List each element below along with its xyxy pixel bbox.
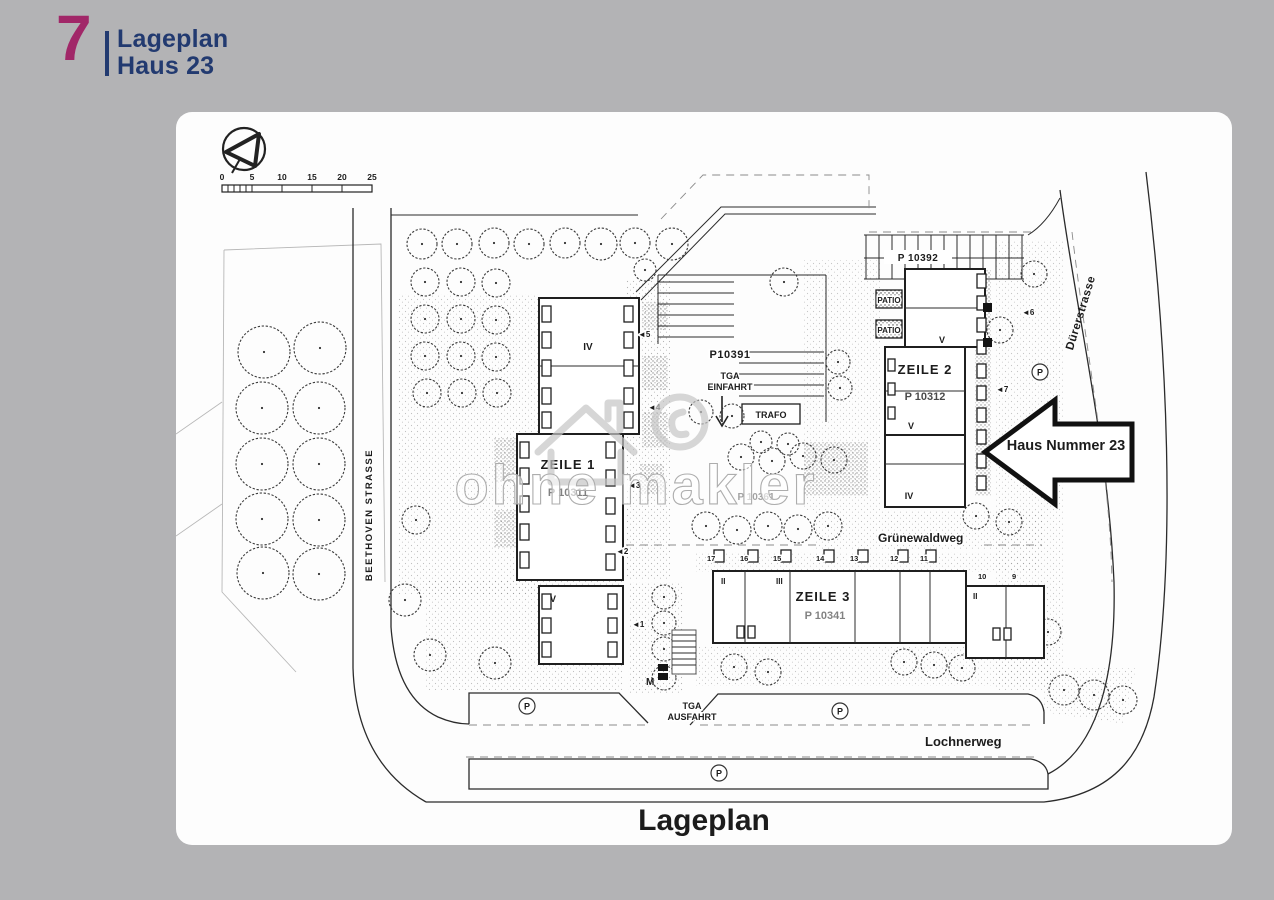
- zeile2-top-floor-label: V: [939, 335, 945, 345]
- tree-center-dot: [839, 387, 841, 389]
- parking-icon: P: [832, 703, 848, 719]
- parking-letter: P: [837, 707, 843, 717]
- house-number: 9: [1012, 572, 1016, 581]
- house-number: 15: [773, 554, 781, 563]
- tree-center-dot: [787, 443, 789, 445]
- tree-center-dot: [736, 529, 738, 531]
- tree-center-dot: [495, 356, 497, 358]
- tga-einfahrt-label-1: TGA: [721, 371, 740, 381]
- zeile2-parcel-label: P 10312: [905, 391, 946, 403]
- tree-center-dot: [1093, 694, 1095, 696]
- tree-center-dot: [456, 243, 458, 245]
- stairs: [672, 630, 696, 674]
- einfahrt-arrow-icon: [716, 396, 728, 426]
- tree-center-dot: [827, 525, 829, 527]
- tree-center-dot: [262, 572, 264, 574]
- tree-center-dot: [731, 415, 733, 417]
- tree-center-dot: [705, 525, 707, 527]
- tree-center-dot: [767, 671, 769, 673]
- parking-icon: P: [519, 698, 535, 714]
- zeile3-parcel-label: P 10341: [805, 610, 846, 622]
- m-label: M: [646, 677, 654, 688]
- section-title-line2: Haus 23: [117, 53, 228, 80]
- tree-center-dot: [263, 351, 265, 353]
- highlight-arrow-label: Haus Nummer 23: [1007, 438, 1125, 454]
- tree-center-dot: [837, 361, 839, 363]
- tree-center-dot: [415, 519, 417, 521]
- tree-center-dot: [318, 463, 320, 465]
- scale-bar: 0 5 10 15 20 25: [220, 172, 377, 192]
- tree-center-dot: [318, 407, 320, 409]
- scale-tick: 15: [307, 172, 317, 182]
- unit-marker: ◄6: [1022, 308, 1035, 317]
- tree-center-dot: [461, 392, 463, 394]
- parking-letter: P: [1037, 368, 1043, 378]
- tree-center-dot: [424, 281, 426, 283]
- plan-caption: Lageplan: [638, 804, 770, 837]
- tree-center-dot: [493, 242, 495, 244]
- house-number: 10: [978, 572, 986, 581]
- tree-center-dot: [644, 269, 646, 271]
- zeile1-lower-floor-label: V: [550, 594, 556, 604]
- tree-center-dot: [663, 622, 665, 624]
- north-arrow-icon: [223, 128, 265, 173]
- scale-tick: 10: [277, 172, 287, 182]
- tree-center-dot: [318, 519, 320, 521]
- section-number: 7: [56, 6, 92, 70]
- page: { "page": { "background": "#b3b3b5", "ca…: [0, 0, 1274, 900]
- tree-center-dot: [495, 282, 497, 284]
- section-header: 7 Lageplan Haus 23: [0, 0, 1274, 112]
- tree-center-dot: [903, 661, 905, 663]
- tree-center-dot: [460, 318, 462, 320]
- tree-center-dot: [460, 355, 462, 357]
- scale-tick: 5: [250, 172, 255, 182]
- tree-center-dot: [429, 654, 431, 656]
- parking-letter: P: [716, 769, 722, 779]
- tree-center-dot: [1063, 689, 1065, 691]
- unit-marker: ◄5: [638, 330, 651, 339]
- tree-center-dot: [496, 392, 498, 394]
- street-duerer-label: Dürerstrasse: [1064, 275, 1098, 352]
- tree-center-dot: [460, 281, 462, 283]
- tree-center-dot: [404, 599, 406, 601]
- tree-center-dot: [424, 355, 426, 357]
- zeile3-ext-floor-label: II: [973, 592, 977, 601]
- unit-marker: ◄1: [632, 620, 645, 629]
- patio-label-1: PATIO: [877, 296, 900, 305]
- tga-einfahrt-label-2: EINFAHRT: [708, 382, 754, 392]
- house-number: 16: [740, 554, 748, 563]
- tree-center-dot: [797, 528, 799, 530]
- trafo: TRAFO: [742, 404, 800, 424]
- watermark-text: ohne makler: [455, 453, 818, 516]
- zeile2-mid-floor-label: V: [908, 421, 914, 431]
- house-number: 11: [920, 554, 928, 563]
- house-number: 17: [707, 554, 715, 563]
- street-beethoven-label: BEETHOVEN STRASSE: [364, 449, 375, 581]
- street-lochner: Lochnerweg: [466, 693, 1048, 789]
- tree-center-dot: [760, 441, 762, 443]
- patio-label-2: PATIO: [877, 326, 900, 335]
- scale-tick: 0: [220, 172, 225, 182]
- scale-tick: 20: [337, 172, 347, 182]
- parking-icon: P: [1032, 364, 1048, 380]
- parking-p10391-label: P10391: [710, 349, 751, 361]
- tree-center-dot: [600, 243, 602, 245]
- tree-center-dot: [975, 515, 977, 517]
- house-number: 12: [890, 554, 898, 563]
- tree-center-dot: [933, 664, 935, 666]
- tree-center-dot: [1047, 631, 1049, 633]
- tree-center-dot: [494, 662, 496, 664]
- zeile1-upper-floor-label: IV: [583, 342, 593, 353]
- section-title-line1: Lageplan: [117, 26, 228, 53]
- tree-center-dot: [1008, 521, 1010, 523]
- tree-center-dot: [318, 573, 320, 575]
- tree-center-dot: [663, 648, 665, 650]
- tree-center-dot: [1033, 273, 1035, 275]
- zeile3-floor-ii-label: II: [721, 577, 725, 586]
- tree-center-dot: [663, 596, 665, 598]
- tree-center-dot: [733, 666, 735, 668]
- house-number: 14: [816, 554, 825, 563]
- tree-center-dot: [961, 667, 963, 669]
- parking-p10392-label: P 10392: [898, 253, 939, 264]
- trafo-label: TRAFO: [756, 410, 787, 420]
- tree-center-dot: [671, 243, 673, 245]
- zeile2-lower-floor-label: IV: [905, 491, 914, 501]
- tree-center-dot: [833, 459, 835, 461]
- tree-center-dot: [999, 329, 1001, 331]
- street-lochner-label: Lochnerweg: [925, 734, 1002, 749]
- header-divider: [105, 31, 109, 76]
- site-plan-svg: BEETHOVEN STRASSE Dürerstrasse Lochnerwe…: [176, 112, 1232, 845]
- tree-center-dot: [261, 407, 263, 409]
- tree-center-dot: [495, 319, 497, 321]
- tree-center-dot: [783, 281, 785, 283]
- zeile2-label: ZEILE 2: [898, 362, 953, 377]
- section-title: Lageplan Haus 23: [117, 26, 228, 80]
- tree-center-dot: [426, 392, 428, 394]
- path-gruenewald-label: Grünewaldweg: [878, 531, 963, 545]
- zeile3-label: ZEILE 3: [796, 589, 851, 604]
- tree-center-dot: [1122, 699, 1124, 701]
- parking-letter: P: [524, 702, 530, 712]
- tga-ausfahrt-label-2: AUSFAHRT: [668, 712, 718, 722]
- parking-icon: P: [711, 765, 727, 781]
- zeile3-floor-iii-label: III: [776, 577, 783, 586]
- plan-card: BEETHOVEN STRASSE Dürerstrasse Lochnerwe…: [176, 112, 1232, 845]
- tree-center-dot: [319, 347, 321, 349]
- tree-center-dot: [528, 243, 530, 245]
- tree-center-dot: [261, 518, 263, 520]
- tree-center-dot: [767, 525, 769, 527]
- tree-center-dot: [634, 242, 636, 244]
- tree-center-dot: [261, 463, 263, 465]
- unit-marker: ◄7: [996, 385, 1009, 394]
- tga-ausfahrt-label-1: TGA: [683, 701, 702, 711]
- tree-center-dot: [421, 243, 423, 245]
- house-number: 13: [850, 554, 858, 563]
- tree-center-dot: [564, 242, 566, 244]
- unit-marker: ◄2: [616, 547, 629, 556]
- tree-center-dot: [424, 318, 426, 320]
- scale-tick: 25: [367, 172, 377, 182]
